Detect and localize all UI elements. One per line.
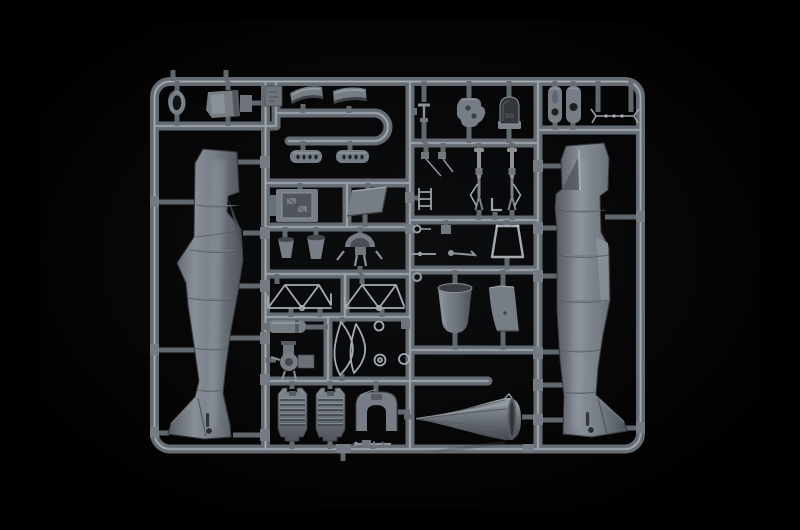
photo-stage xyxy=(0,0,800,530)
radiator-part xyxy=(269,189,318,222)
sprue-photo xyxy=(0,0,800,530)
backdrop-glow xyxy=(40,20,760,510)
head-armor-part xyxy=(498,97,521,129)
access-panel-part xyxy=(347,187,387,216)
cowl-cup-part xyxy=(438,284,472,334)
oval-former-ring-part xyxy=(169,91,186,115)
part-number-tag xyxy=(265,86,282,106)
